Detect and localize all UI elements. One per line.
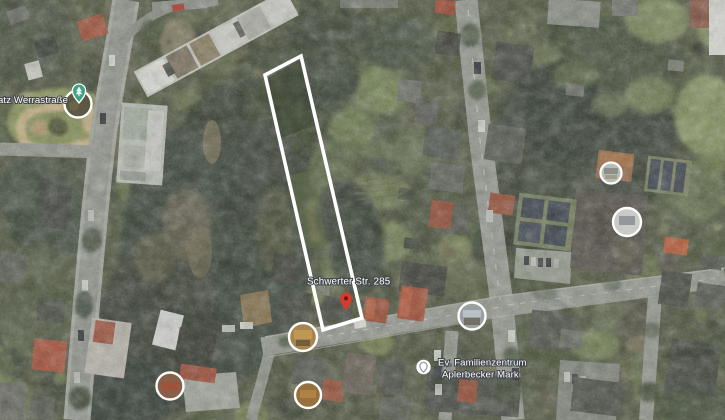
svg-text:atz Werrastraße: atz Werrastraße [0,95,68,106]
svg-text:Aplerbecker Mark: Aplerbecker Mark [442,370,519,381]
svg-text:Ev. Familienzentrum: Ev. Familienzentrum [438,358,527,369]
svg-text:Schwerter Str. 285: Schwerter Str. 285 [307,277,391,288]
